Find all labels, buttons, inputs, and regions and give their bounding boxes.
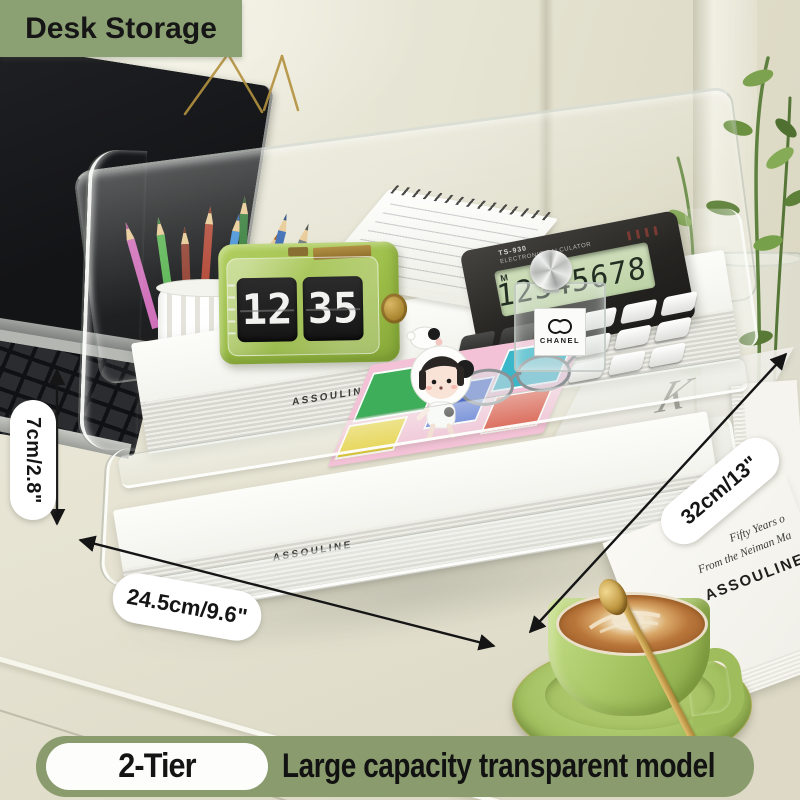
- perfume-label: CHANEL: [534, 308, 586, 356]
- height-dimension-label: 7cm/2.8": [10, 400, 56, 520]
- product-photo: K ASSOULINE ASSOULINI: [0, 0, 800, 800]
- tier-pill: 2-Tier: [46, 743, 268, 790]
- chanel-logo-icon: [548, 319, 572, 333]
- calculator-key: [654, 317, 692, 343]
- perfume-brand: CHANEL: [540, 336, 580, 345]
- calculator-key: [614, 324, 652, 350]
- perfume-crystal-cap: [530, 250, 572, 290]
- calculator-slider-switch: [627, 225, 664, 241]
- clock-minute-display: 35: [303, 276, 364, 341]
- clock-top-button: [288, 247, 308, 256]
- clock-scale-marks: [228, 284, 236, 334]
- perfume-bottle: CHANEL: [514, 282, 606, 372]
- clock-hour-display: 12: [237, 277, 298, 342]
- gold-wire-stand: [160, 48, 320, 118]
- organizer-tier1-left-wall: [79, 149, 147, 451]
- bottom-banner: 2-Tier Large capacity transparent model: [36, 736, 754, 797]
- flip-clock: 12 35: [218, 241, 400, 364]
- corner-badge: Desk Storage: [0, 0, 242, 57]
- tier-label: 2-Tier: [118, 747, 195, 786]
- banner-description: Large capacity transparent model: [282, 747, 715, 786]
